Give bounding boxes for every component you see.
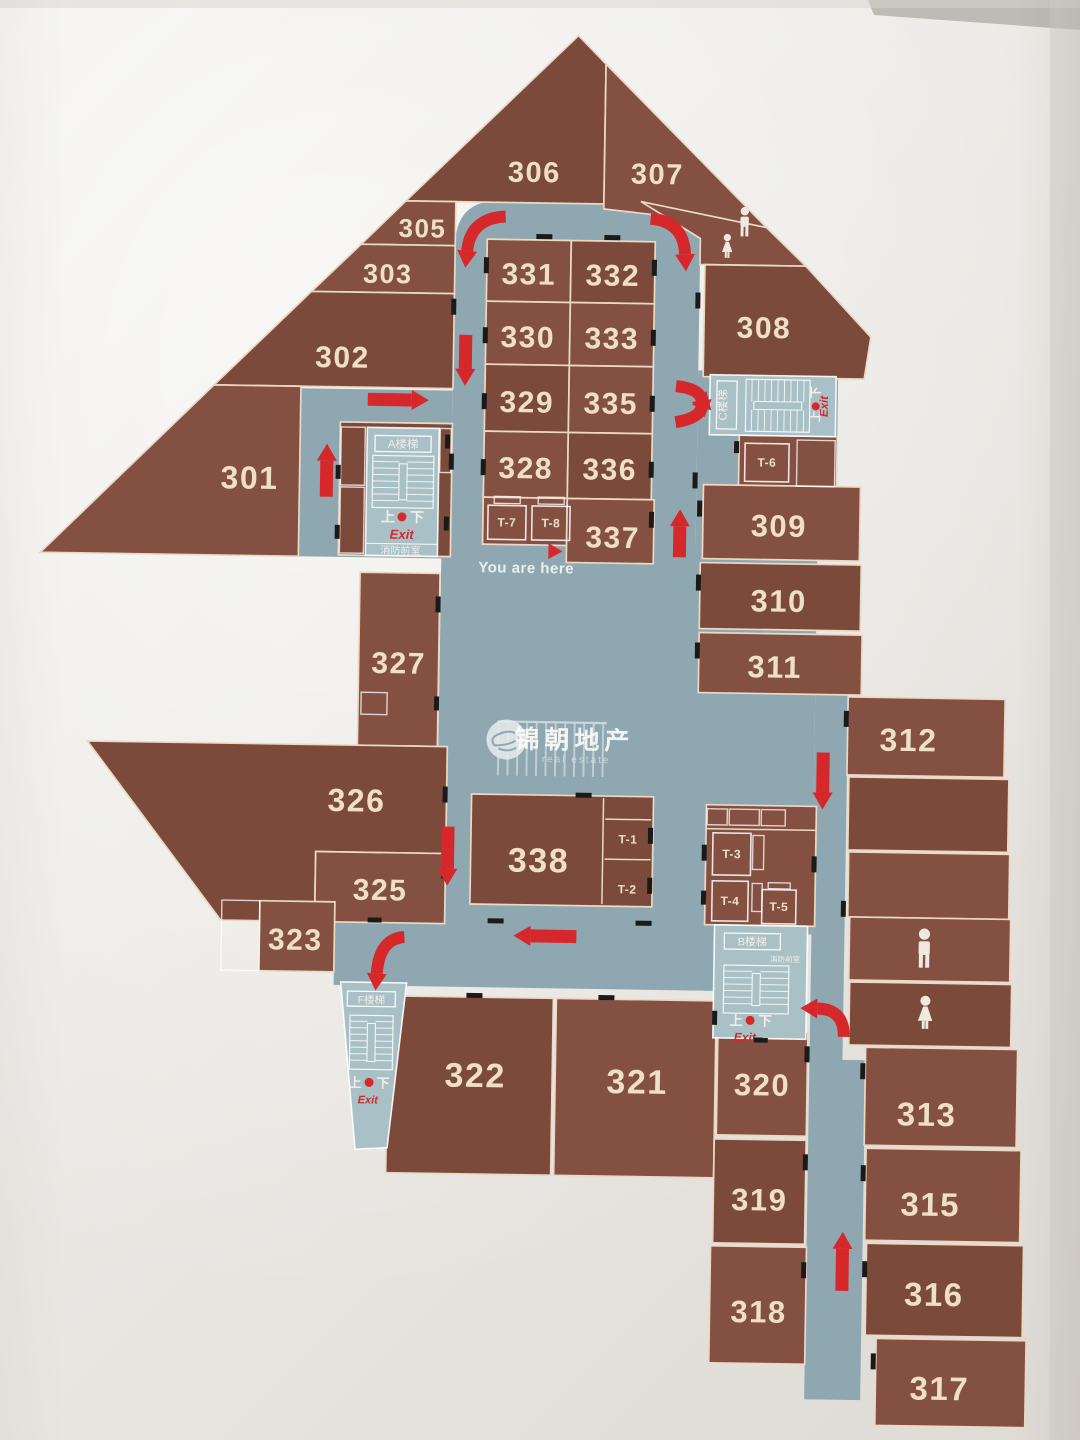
door-mark <box>445 435 450 449</box>
floor-plan-map: 3063073083053033023013313323303333293353… <box>27 27 1047 1428</box>
door-mark <box>844 711 849 727</box>
room-label-337: 337 <box>585 521 640 555</box>
door-mark <box>754 1037 768 1042</box>
door-mark <box>712 1011 717 1025</box>
room-label-318: 318 <box>730 1294 787 1330</box>
door-mark <box>368 917 382 922</box>
room-label-306: 306 <box>508 157 561 190</box>
room-label-335: 335 <box>583 387 638 421</box>
room-label-310: 310 <box>750 583 807 619</box>
room-label-313: 313 <box>897 1095 957 1133</box>
room-label-331: 331 <box>501 258 556 292</box>
room-label-332: 332 <box>585 259 640 293</box>
room-label-338: 338 <box>508 841 570 880</box>
room-306 <box>406 33 607 204</box>
door-mark <box>695 642 700 658</box>
room-unlabeled-2 <box>848 852 1010 920</box>
room-label-333: 333 <box>584 322 639 356</box>
door-mark <box>801 1262 806 1278</box>
room-label-312: 312 <box>879 722 937 759</box>
door-mark <box>696 574 701 590</box>
floor-plan-svg: 3063073083053033023013313323303333293353… <box>0 0 1080 1440</box>
watermark-cn-text: 锦朝地产 <box>514 726 634 756</box>
door-mark <box>604 235 620 240</box>
watermark-en-text: real estate <box>542 754 611 766</box>
corridor-area-4 <box>334 917 715 991</box>
door-mark <box>598 995 614 1000</box>
room-label-302: 302 <box>315 341 370 375</box>
room-label-321: 321 <box>606 1063 668 1102</box>
door-mark <box>804 1046 809 1062</box>
elevator-label-T-2: T-2 <box>618 882 637 896</box>
door-mark <box>649 512 654 528</box>
room-label-322: 322 <box>444 1057 506 1096</box>
stair-a-exit-label: Exit <box>390 527 415 542</box>
room-label-301: 301 <box>220 459 278 496</box>
room-label-327: 327 <box>371 647 426 681</box>
door-mark <box>484 257 489 273</box>
stair-b-down-label: 下 <box>758 1014 772 1029</box>
stair-a-up-label: 上 <box>381 509 395 525</box>
door-mark <box>871 1353 876 1369</box>
room-label-305: 305 <box>398 213 446 244</box>
stair-b-label: B楼梯 <box>738 934 768 948</box>
door-mark <box>652 260 657 276</box>
elevator-label-T-8: T-8 <box>541 516 560 530</box>
door-mark <box>451 299 456 315</box>
door-mark <box>488 918 504 923</box>
door-mark <box>803 1154 808 1170</box>
room-label-319: 319 <box>731 1182 788 1218</box>
stair-f-up-label: 上 <box>348 1075 361 1090</box>
door-mark <box>647 878 652 894</box>
stair-a-down-label: 下 <box>410 509 424 525</box>
elevator-label-T-7: T-7 <box>497 515 516 529</box>
room-307 <box>604 64 770 228</box>
door-mark <box>702 845 707 861</box>
door-mark <box>483 327 488 343</box>
room-label-330: 330 <box>500 321 555 355</box>
wall-line <box>605 819 651 820</box>
door-mark <box>701 891 706 905</box>
door-mark <box>442 787 447 803</box>
door-mark <box>860 1063 865 1079</box>
door-mark <box>811 856 816 872</box>
room-label-315: 315 <box>900 1185 960 1223</box>
poster-top-line <box>0 0 1080 8</box>
room-label-329: 329 <box>499 386 554 420</box>
wall-line <box>605 859 651 860</box>
door-mark <box>650 396 655 412</box>
room-label-325: 325 <box>353 874 408 908</box>
room-label-308: 308 <box>736 312 791 346</box>
stair-b-exit-label: Exit <box>734 1030 757 1044</box>
door-mark <box>449 454 454 470</box>
door-mark <box>335 525 340 539</box>
door-mark <box>648 828 653 844</box>
room-label-320: 320 <box>734 1067 791 1103</box>
room-label-303: 303 <box>363 259 413 290</box>
stair-a-fire-lobby-label: 消防前室 <box>380 544 420 558</box>
elevator-label-T-1: T-1 <box>618 832 637 846</box>
poster-right-edge <box>1050 0 1080 1440</box>
door-mark <box>734 441 739 453</box>
stair-c-exit-label: Exit <box>819 395 831 417</box>
door-mark <box>482 393 487 409</box>
room-label-309: 309 <box>750 508 807 544</box>
stair-c-label: C楼梯 <box>716 389 730 421</box>
door-mark <box>434 696 439 710</box>
door-mark <box>481 459 486 475</box>
room-label-326: 326 <box>327 782 385 819</box>
door-mark <box>841 901 846 917</box>
door-mark <box>536 234 552 239</box>
floor-plan-photo: { "title": "3F floor plan directory", "p… <box>0 0 1080 1440</box>
stair-f-down-label: 下 <box>376 1076 389 1091</box>
door-mark <box>576 793 592 798</box>
elevator-label-T-3: T-3 <box>722 847 741 861</box>
elevator-label-T-6: T-6 <box>757 455 776 469</box>
door-mark <box>861 1165 866 1181</box>
door-mark <box>444 517 449 531</box>
door-mark <box>651 330 656 346</box>
door-mark <box>435 596 440 612</box>
room-label-307: 307 <box>631 159 684 192</box>
room-label-336: 336 <box>582 453 637 487</box>
room-unlabeled-1 <box>848 777 1009 853</box>
room-label-316: 316 <box>904 1275 964 1313</box>
door-mark <box>636 921 652 926</box>
door-mark <box>649 462 654 478</box>
elevator-label-T-5: T-5 <box>769 900 788 914</box>
room-label-323: 323 <box>268 923 323 957</box>
stair-f-exit-label: Exit <box>358 1094 380 1106</box>
stair-b-fire-lobby-label: 消防前室 <box>770 954 801 964</box>
stair-b-up-label: 上 <box>729 1013 743 1028</box>
stair-f-label: F楼梯 <box>358 993 386 1006</box>
room-label-328: 328 <box>498 452 553 486</box>
door-mark <box>695 292 700 308</box>
you-are-here-label: You are here <box>478 559 574 578</box>
door-mark <box>336 465 341 479</box>
door-mark <box>466 993 482 998</box>
room-label-317: 317 <box>909 1369 969 1407</box>
door-mark <box>862 1261 867 1277</box>
elevator-label-T-4: T-4 <box>720 894 739 908</box>
stair-a-label: A楼梯 <box>388 437 419 451</box>
door-mark <box>697 500 702 516</box>
room-label-311: 311 <box>747 649 802 685</box>
door-mark <box>692 472 697 488</box>
